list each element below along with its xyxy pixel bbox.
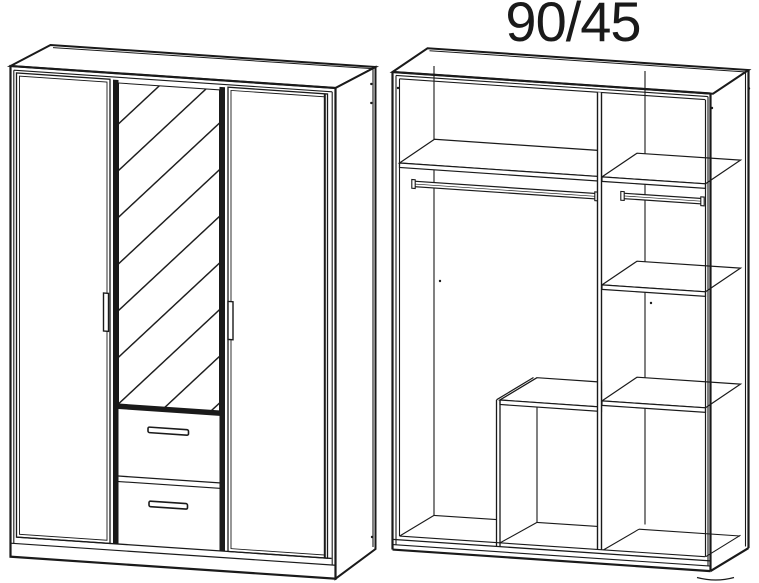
- mirror-panel: [119, 83, 220, 411]
- shelf-right-lower: [602, 377, 741, 412]
- left-door: [17, 73, 111, 544]
- shelf-right-top: [602, 153, 741, 188]
- shelf-right-middle: [602, 261, 741, 296]
- plinth-top-edge: [11, 543, 336, 565]
- door-handle-right: [228, 301, 233, 339]
- drawer-handle-lower: [149, 501, 188, 509]
- interior-lines: [400, 66, 741, 557]
- wardrobe-exterior-view: [11, 45, 376, 579]
- drawer-divider: [119, 476, 220, 483]
- top-panel: [11, 45, 376, 88]
- cubby-panel: [497, 400, 501, 547]
- mirror-stile-left: [113, 80, 119, 544]
- drawer-handle-upper: [148, 427, 189, 435]
- mirror-stile-right: [220, 87, 226, 551]
- diagram-page: 90/45: [0, 0, 759, 583]
- door-handle-left: [104, 293, 109, 331]
- wardrobe-diagram: [0, 0, 759, 583]
- hanging-rail-left: [412, 179, 598, 200]
- doors-bottom-edge: [17, 537, 332, 558]
- front-face: [11, 66, 336, 579]
- side-panel: [336, 67, 376, 579]
- bottom-edge: [393, 550, 711, 572]
- hanging-rail-right: [621, 191, 704, 205]
- top-shelf-left-compartment: [400, 139, 602, 181]
- corner-shadow: [697, 578, 734, 581]
- wardrobe-interior-view: [393, 48, 751, 580]
- cubby-shelf: [500, 378, 602, 412]
- right-door: [228, 87, 328, 558]
